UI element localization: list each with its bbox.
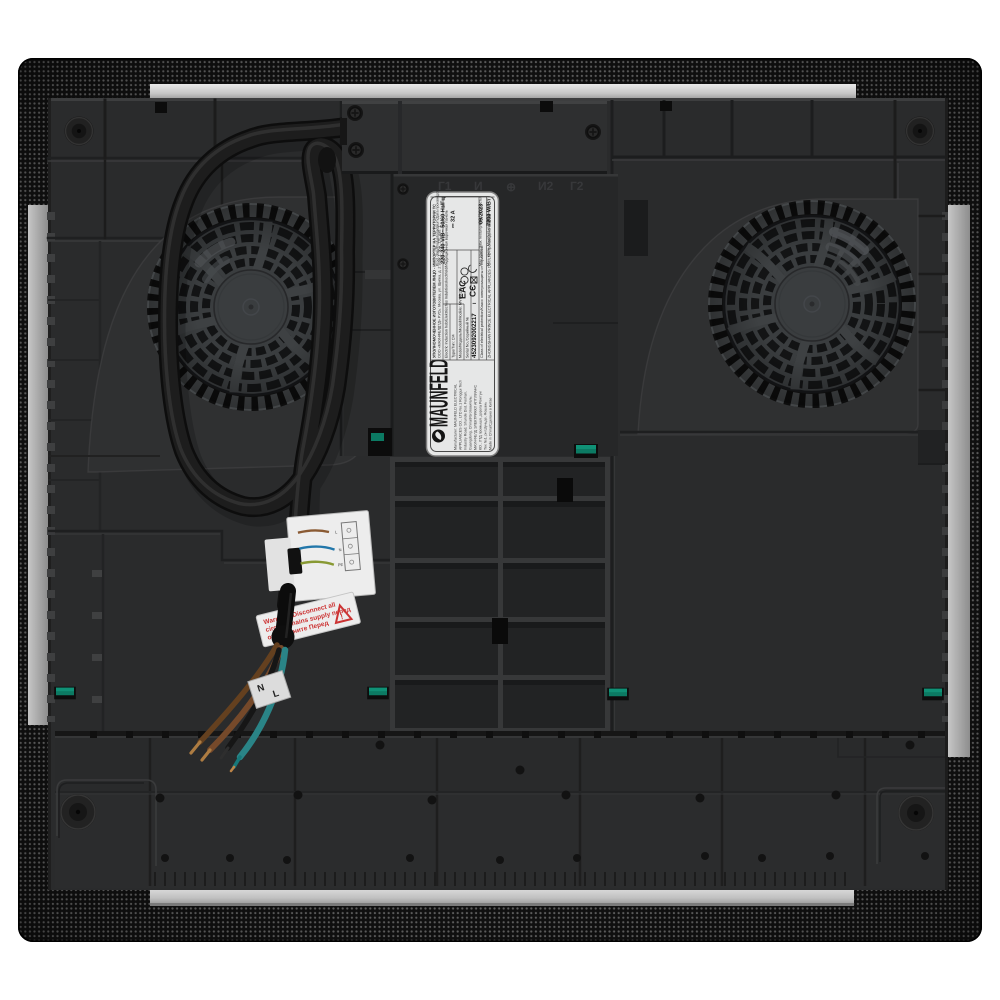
svg-text:Serial No./Серийный №: Serial No./Серийный №	[466, 317, 470, 358]
svg-text:Г1: Г1	[438, 179, 452, 193]
svg-text:7200 W/Bт: 7200 W/Bт	[486, 198, 493, 226]
svg-text:09/2023: 09/2023	[478, 204, 485, 224]
svg-text:Manufacturer: MAUNFELD ELECTRI: Manufacturer: MAUNFELD ELECTRICAL	[454, 384, 458, 450]
svg-text:Тех №1, рн Шуньде, Фошань: Тех №1, рн Шуньде, Фошань	[484, 402, 488, 450]
svg-text:Industry Road, Shunde Dist, Fo: Industry Road, Shunde Dist, Foshan,	[464, 391, 468, 450]
svg-text:⊕: ⊕	[506, 180, 516, 194]
svg-text:Prod. date/Produktionsdatum/Да: Prod. date/Produktionsdatum/Дата произво…	[436, 186, 440, 266]
svg-text:N: N	[338, 547, 341, 552]
svg-text:CЄ: CЄ	[468, 285, 478, 297]
svg-text:МАУНФЕЛД ЭЛЕКТРИККЛ АППЛИАНС: МАУНФЕЛД ЭЛЕКТРИККЛ АППЛИАНС	[474, 384, 478, 450]
svg-text:Made in China/Сделано в Китае: Made in China/Сделано в Китае	[489, 398, 493, 450]
svg-text:220-240 V/B~ 50/60 Hз/Гц: 220-240 V/B~ 50/60 Hз/Гц	[440, 197, 447, 264]
svg-text:PE: PE	[338, 562, 344, 567]
svg-text:⎓ 32 A: ⎓ 32 A	[451, 210, 457, 228]
svg-text:MAUNFELD: MAUNFELD	[424, 359, 454, 427]
svg-text:И2: И2	[538, 179, 554, 193]
svg-text:Type/Тип: CI4: Type/Тип: CI4	[452, 334, 456, 358]
svg-text:APPLIANCES CO., LTD No.1 Rongg: APPLIANCES CO., LTD No.1 Ronggui Tech	[459, 380, 463, 450]
svg-text:Г2: Г2	[570, 179, 584, 193]
svg-text:4523092002217: 4523092002217	[471, 313, 478, 358]
svg-text:КО., ЛТД промышл. дорога Ронгг: КО., ЛТД промышл. дорога Ронггуи	[479, 391, 483, 450]
svg-text:И: И	[474, 179, 483, 193]
svg-text:Guangdong, China/Изготовитель:: Guangdong, China/Изготовитель:	[469, 395, 473, 450]
